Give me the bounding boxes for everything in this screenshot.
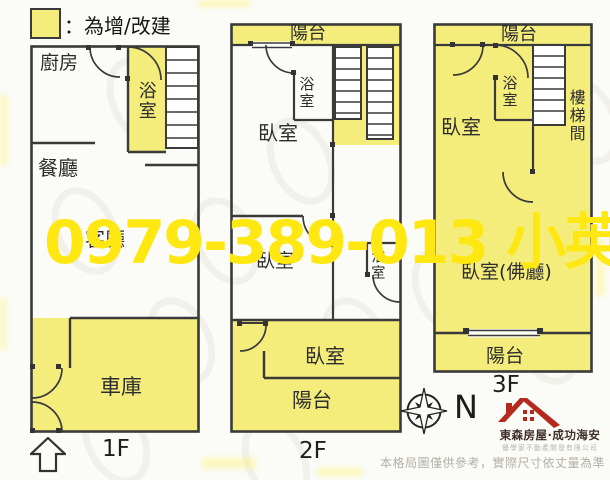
entrance-arrow-icon — [30, 437, 66, 473]
room-label-balcony-top-3f: 陽台 — [501, 25, 537, 45]
room-label-balcony-low-3f: 陽台 — [486, 346, 524, 367]
disclaimer-text: 本格局圖僅供參考，實際尺寸依丈量為準 — [348, 454, 605, 471]
stairs-1f — [166, 47, 198, 148]
yellow-smudge — [0, 95, 7, 165]
floor-name-3f: 3F — [492, 372, 520, 398]
floor-name-2f: 2F — [299, 438, 327, 464]
brand-house-icon — [497, 396, 561, 430]
floor-name-1f: 1F — [102, 436, 130, 462]
compass-rose-icon — [400, 387, 448, 435]
window-2f — [248, 41, 295, 49]
room-label-balcony-top-2f: 陽台 — [290, 24, 326, 44]
legend-label: ：為增/改建 — [64, 10, 171, 39]
room-label-bath-3f: 浴室 — [501, 75, 518, 109]
legend-highlight-swatch — [30, 8, 61, 39]
room-label-stairwell-3f: 樓梯間 — [567, 89, 585, 143]
stairs-3f — [533, 45, 565, 125]
compass-north-label: N — [454, 388, 478, 426]
brand-name: 東森房屋·成功海安 — [492, 427, 608, 443]
room-label-balcony-low-2f: 陽台 — [292, 389, 332, 411]
yellow-smudge — [202, 458, 256, 468]
floorplan-page: ：為增/改建 — [0, 0, 610, 480]
room-label-bath-1f: 浴室 — [136, 81, 156, 121]
yellow-smudge — [0, 298, 6, 350]
room-label-bath-top-2f: 浴室 — [298, 76, 315, 110]
room-label-bed-low-2f: 臥室 — [305, 345, 345, 367]
brand-company-name: 優學家不動產開發有限公司 — [494, 442, 606, 452]
phone-watermark: 0979-389-013 小英 — [44, 194, 610, 281]
room-label-dining: 餐廳 — [38, 157, 78, 179]
room-label-garage: 車庫 — [100, 376, 142, 399]
room-label-bed-3f: 臥室 — [441, 116, 481, 138]
room-label-kitchen: 廚房 — [40, 53, 78, 74]
window-3f — [463, 328, 543, 338]
room-label-bed-top-2f: 臥室 — [258, 122, 298, 144]
yellow-smudge — [198, 0, 250, 7]
